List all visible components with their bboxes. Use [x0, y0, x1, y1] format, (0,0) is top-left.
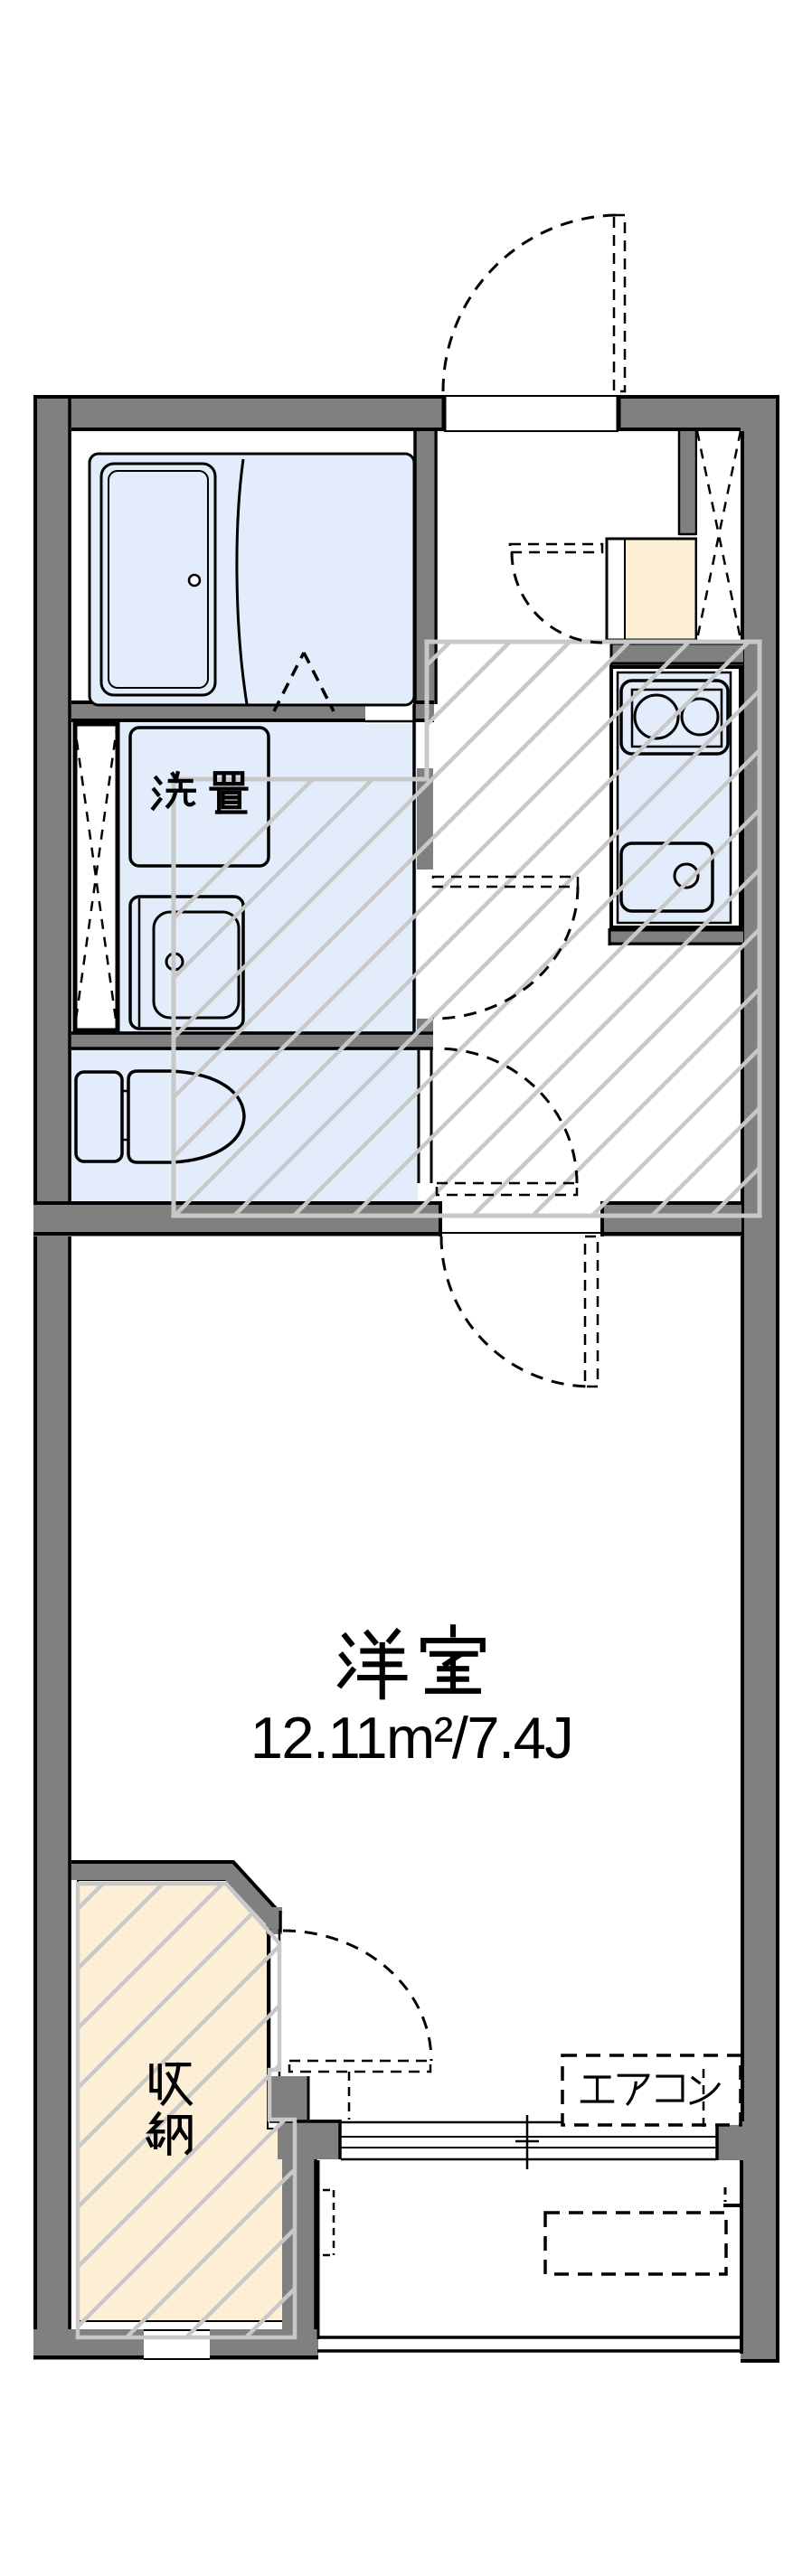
svg-text:12.11m²/7.4J: 12.11m²/7.4J [250, 1705, 573, 1771]
